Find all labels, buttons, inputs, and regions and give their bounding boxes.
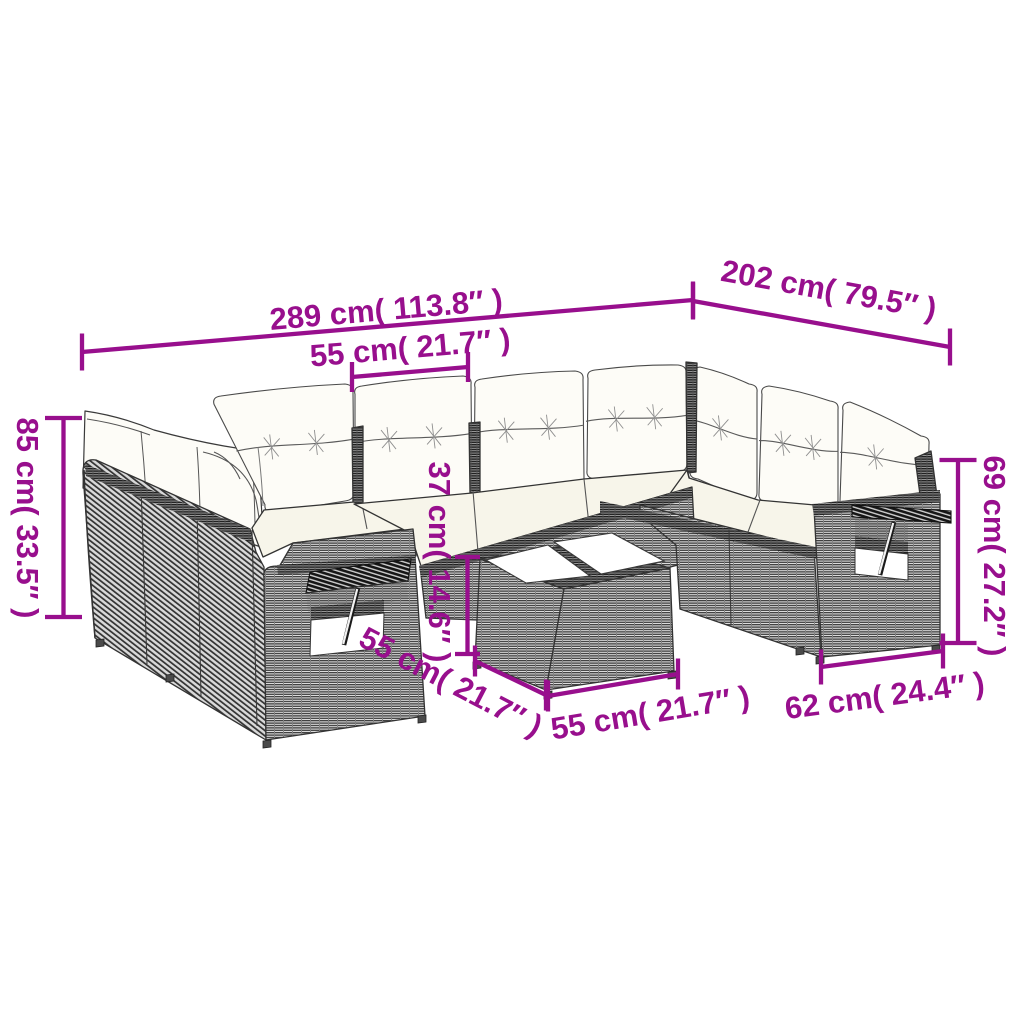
svg-text:37 cm( 14.6″ ): 37 cm( 14.6″ ) bbox=[422, 462, 457, 663]
svg-text:69 cm( 27.2″ ): 69 cm( 27.2″ ) bbox=[977, 456, 1012, 657]
svg-text:85 cm( 33.5″ ): 85 cm( 33.5″ ) bbox=[10, 418, 45, 619]
